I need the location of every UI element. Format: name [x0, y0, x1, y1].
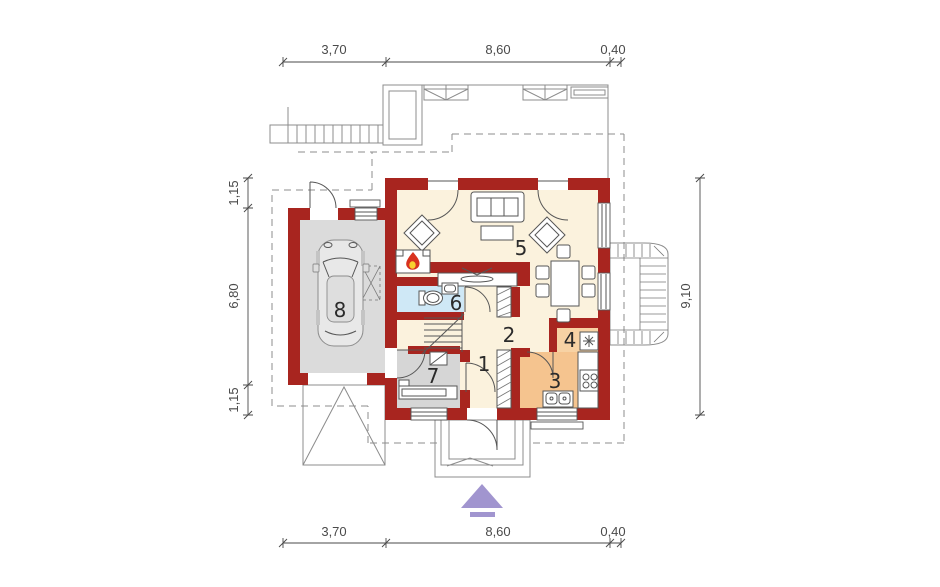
dim-top-2: 8,60: [485, 42, 510, 57]
dim-bottom-3: 0,40: [600, 524, 625, 539]
kitchen-window: [531, 408, 583, 429]
dimension-bottom: 3,70 8,60 0,40: [279, 524, 626, 548]
chair-icon: [582, 266, 595, 279]
dimension-right: 9,10: [678, 174, 705, 419]
room-label-garage: 8: [334, 298, 347, 322]
room-label-utility: 7: [427, 364, 440, 388]
chimney: [383, 85, 422, 145]
chair-icon: [536, 284, 549, 297]
chair-icon: [557, 309, 570, 322]
dim-left-1: 1,15: [226, 180, 241, 205]
wardrobe-icon: [497, 287, 511, 317]
fireplace-icon: [396, 250, 430, 273]
dim-top-1: 3,70: [321, 42, 346, 57]
stove-icon: [580, 370, 598, 391]
sofa-icon: [471, 192, 524, 222]
dim-bottom-2: 8,60: [485, 524, 510, 539]
roof-window: [523, 85, 567, 100]
dim-bottom-1: 3,70: [321, 524, 346, 539]
garage-side-door: [310, 182, 336, 208]
dimension-top: 3,70 8,60 0,40: [279, 42, 626, 67]
car-icon: [313, 240, 369, 346]
coffee-table-icon: [481, 226, 513, 240]
floor-plan: 1 2 3 4 5 6 7 8 3,70 8,60 0,40 3,70 8,60…: [0, 0, 940, 587]
dining-window: [598, 203, 610, 248]
entrance-arrow: [461, 484, 503, 517]
room-label-hall: 1: [478, 352, 491, 376]
terrace: [610, 243, 668, 345]
driveway: [303, 385, 385, 465]
front-door: [467, 420, 497, 450]
chair-icon: [536, 266, 549, 279]
pergola: [270, 107, 385, 143]
chair-icon: [582, 284, 595, 297]
fridge-icon: [580, 332, 598, 350]
chair-icon: [557, 245, 570, 258]
room-label-pantry: 4: [564, 328, 577, 352]
roof-hatch: [571, 87, 608, 98]
dimension-left: 1,15 6,80 1,15: [226, 174, 253, 419]
room-label-living: 5: [515, 236, 528, 260]
room-label-corridor: 2: [503, 323, 516, 347]
wardrobe-icon: [497, 350, 511, 408]
dim-left-3: 1,15: [226, 387, 241, 412]
roof-window: [424, 85, 468, 100]
toilet-icon: [419, 291, 443, 305]
dim-top-3: 0,40: [600, 42, 625, 57]
terrace-sliding-door: [598, 273, 610, 310]
dim-left-2: 6,80: [226, 283, 241, 308]
dim-right-1: 9,10: [678, 283, 693, 308]
room-label-wc: 6: [450, 291, 463, 315]
room-label-kitchen: 3: [549, 369, 562, 393]
utility-window: [411, 408, 447, 420]
porch: [435, 420, 530, 477]
sink-icon: [543, 391, 573, 407]
floor-plan-drawing: 1 2 3 4 5 6 7 8 3,70 8,60 0,40 3,70 8,60…: [0, 0, 940, 587]
